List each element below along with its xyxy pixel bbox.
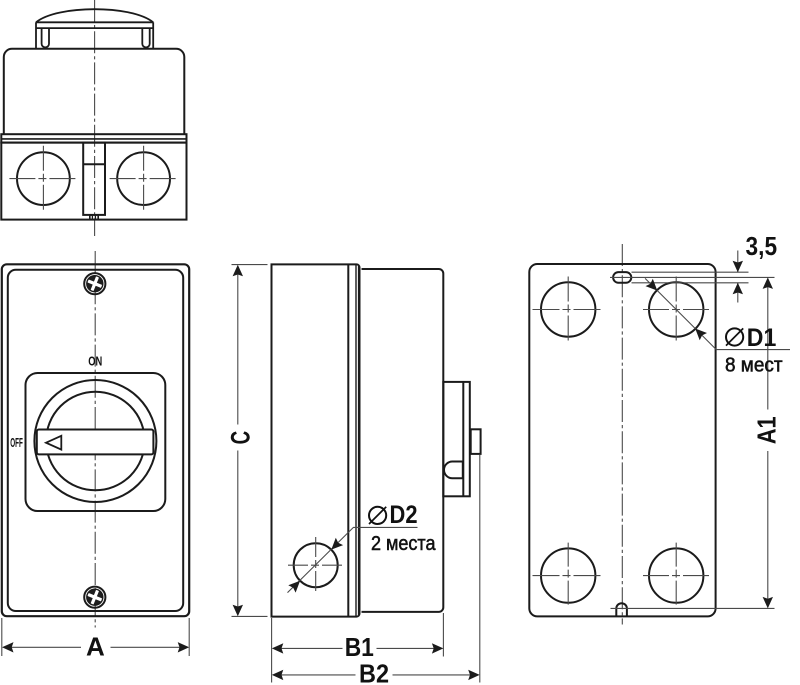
svg-text:C: C	[225, 431, 255, 445]
svg-text:A1: A1	[751, 416, 781, 444]
svg-text:ON: ON	[88, 354, 102, 369]
svg-text:OFF: OFF	[10, 435, 23, 450]
svg-text:3,5: 3,5	[746, 231, 778, 261]
svg-text:D2: D2	[390, 501, 418, 529]
svg-text:A: A	[86, 631, 105, 661]
svg-text:B1: B1	[345, 632, 374, 662]
svg-text:8 мест: 8 мест	[725, 354, 783, 376]
svg-text:2 места: 2 места	[371, 533, 436, 555]
svg-text:D1: D1	[747, 324, 777, 352]
svg-text:B2: B2	[359, 659, 389, 685]
